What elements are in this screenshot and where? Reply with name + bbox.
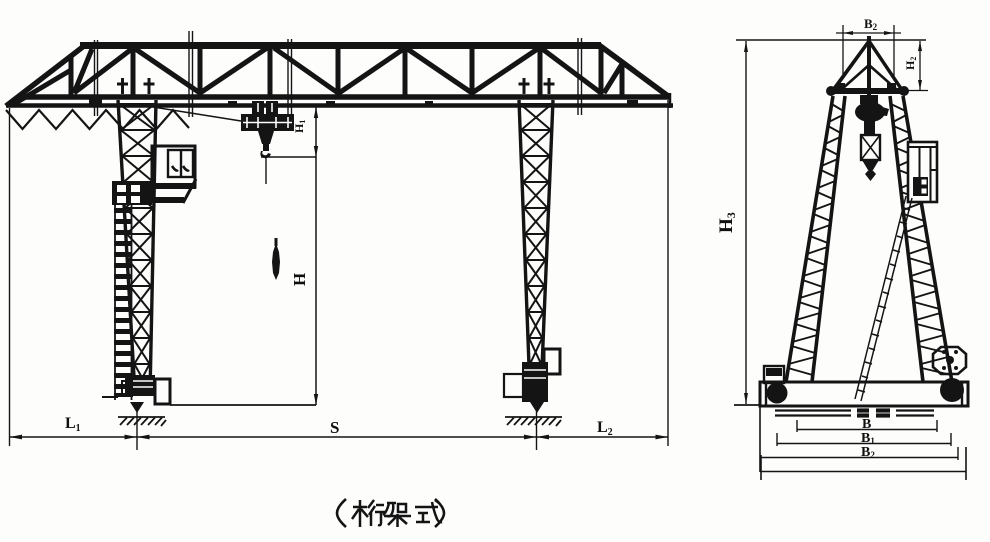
svg-text:S: S (330, 418, 339, 437)
svg-text:B2: B2 (864, 16, 878, 32)
svg-text:B: B (862, 417, 871, 432)
svg-text:H: H (290, 273, 309, 286)
svg-text:L2: L2 (597, 419, 613, 438)
svg-text:L1: L1 (65, 415, 81, 434)
svg-text:H1: H1 (292, 120, 307, 133)
svg-text:B2: B2 (861, 445, 875, 460)
svg-text:H3: H3 (716, 212, 738, 233)
svg-text:B1: B1 (861, 431, 875, 446)
svg-text:H2: H2 (903, 57, 918, 70)
